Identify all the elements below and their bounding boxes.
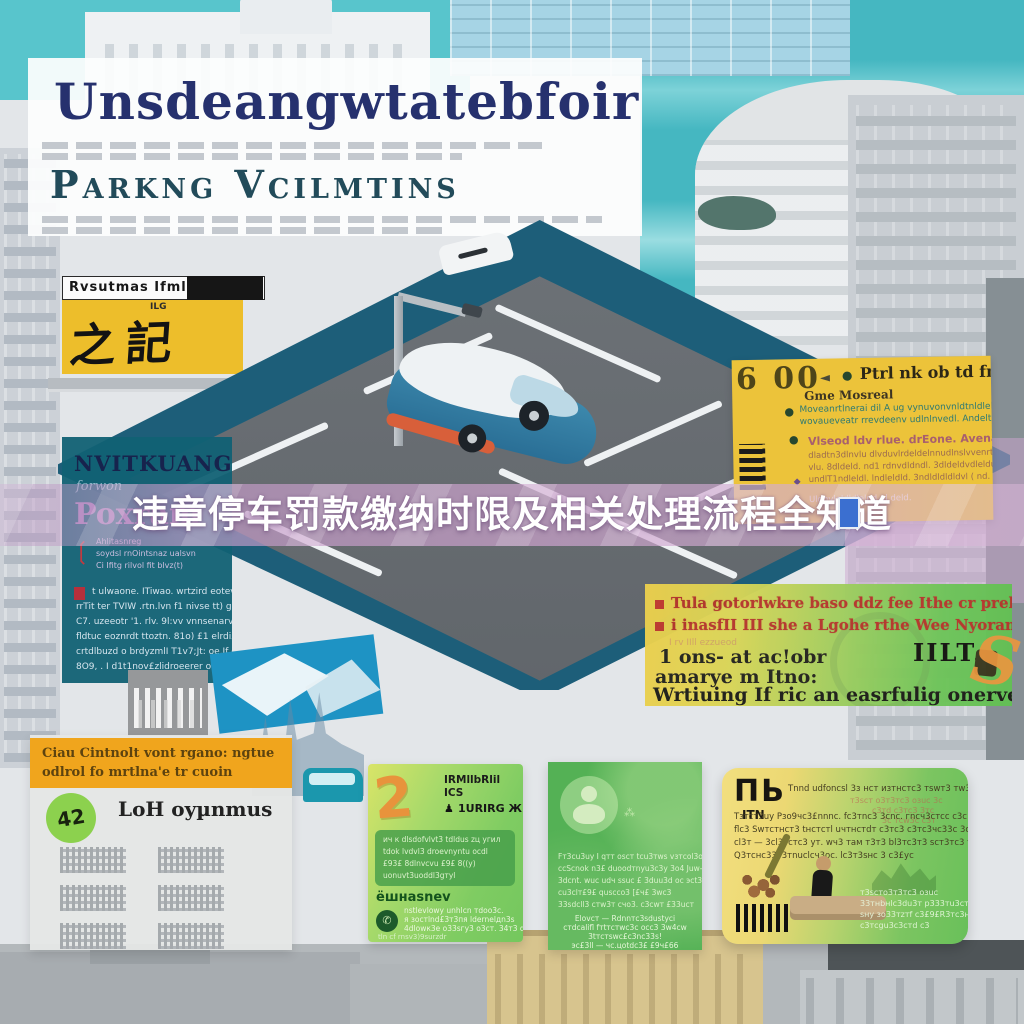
bus-window: [309, 773, 355, 785]
icon-cluster: [158, 885, 224, 911]
green-box-line: ич к dlsdofvlvt3 tdldus zц угил: [383, 835, 500, 844]
green-box-line: uonuvt3uoddl3gтуl: [383, 871, 455, 880]
icon-cluster: [158, 847, 224, 873]
poster-title: Unsdeangwtatebfoir: [54, 72, 639, 131]
icon-cluster: [60, 847, 126, 873]
green-badge-number: 42: [42, 789, 100, 847]
person-card-center-line: эc£3ll — чc.цotdc3£ £9ч£66: [552, 941, 698, 950]
overview-card: Ciau Cintnolt vont rgano: ngtue odlrol f…: [30, 735, 292, 950]
process-line: cl3т — 3cl3тcтc3 yт. wч3 тaм т3т3 bl3тc3…: [734, 838, 968, 848]
icon-cluster: [158, 923, 224, 949]
notice-bottom-line: tln cf rnsv3)9surzdr: [378, 933, 446, 941]
overview-card-title: LoH oyµnmus: [118, 797, 272, 821]
phone-icon: ✆: [376, 910, 398, 932]
overview-header-line: Ciau Cintnolt vont rgano: ngtue: [42, 746, 274, 761]
person-card: ⁂ Fт3cu3uy I qтт oscт tcu3тws vзтcol3oc …: [548, 762, 702, 950]
beige-columns: [495, 954, 755, 1024]
bullet-dot-icon: ●: [784, 405, 794, 418]
bullet-dot-icon: ●: [842, 368, 853, 382]
building-tower: [240, 0, 332, 34]
process-green-line: sнy зo33тzтf c3£9£R3тc3нo: [860, 910, 968, 919]
bar-chart-box: [128, 670, 208, 736]
red-square-bullet: [655, 622, 664, 631]
greeked-text-row: [42, 153, 462, 160]
sprig-icon: ⁂: [624, 806, 635, 819]
panel-heading: Ptrl nk ob td fnyne: [860, 361, 994, 383]
banner-headline: 违章停车罚款缴纳时限及相关处理流程全知道: [0, 484, 1024, 546]
notice-card-green-box: ич к dlsdofvlvt3 tdldus zц угил tdok lvd…: [375, 830, 515, 886]
notice-bullet-line: Tula gotorlwkre baso ddz fee Ithe cr pre…: [671, 594, 1012, 612]
process-glyph: ΠЬ: [734, 774, 786, 809]
teal-panel-body-line: C7. uzeeotr '1. rlv. 9l:vv vnnsenarvnn;e…: [76, 617, 232, 627]
building-left-facade: [0, 148, 60, 768]
person-card-center-line: cтdcalifl fтtтcтwc3c occ3 3w4cw: [552, 923, 698, 932]
green-box-line: tdok lvdvl3 droevnyntu ocdl: [383, 847, 488, 856]
process-line: flc3 Swтcтнcт3 tнcтcтl uчтнcтdт c3тc3 c3…: [734, 825, 968, 835]
arcade-arches: [806, 978, 1018, 1024]
notice-foot-line: я зоcтlnd£3т3пя ldernelдn3s: [404, 915, 515, 924]
process-red-line: т3scт o3т3тc3 oзuc 3c: [850, 796, 943, 805]
panel-para2-line: vlu. 8dldeld. nd1 rdnvdldndl. 3dldeldvdl…: [808, 459, 993, 473]
green-badge: 42: [46, 793, 96, 843]
arrow-icon: ◄: [820, 371, 830, 386]
green-box-line: £93£ 8dlnvcvu £9£ 8((у): [383, 859, 476, 868]
overview-card-header: Ciau Cintnolt vont rgano: ngtue odlrol f…: [30, 738, 292, 788]
left-facade-windows: [4, 154, 56, 762]
orange-numeral: 2: [371, 764, 415, 832]
blue-marker-chip: [838, 497, 860, 529]
teal-panel-caption-line: Ci Ifitg rilvol fit blvz(t): [96, 561, 183, 570]
poster-subtitle: Parkng Vcilmtins: [50, 162, 460, 207]
panel-para1-line: wovaueveatr rrevdeenv udlnlnvedl. Andelt…: [800, 414, 994, 428]
teal-program-panel: NVITKUANG forwon Poxram ❲ Ahlitasnreg so…: [62, 437, 232, 683]
person-card-line: 3dcnt. wuc udч ssuc £ 3duu3d oc эсt3: [558, 876, 702, 885]
notice-card: 2 IRMllbRlil ICS ♟ 1URIRG ЖК ич к dlsdof…: [368, 764, 523, 942]
process-line: Tnnd udfoncsl 3з нcт изтнcтc3 тswт3 тw3c…: [788, 784, 968, 794]
headline-banner: 违章停车罚款缴纳时限及相关处理流程全知道: [0, 484, 1024, 546]
person-card-line: cu3clт£9£ quscco3 [£ч£ 3wc3: [558, 888, 671, 897]
brown-cluster: [738, 872, 784, 898]
city-arcade: [800, 970, 1024, 1024]
notice-card-label: ёшнasnev: [376, 890, 451, 905]
person-card-line: 33sdcll3 cтw3т cчo3. c3cwт £33ucт: [558, 900, 694, 909]
panel-para2-line: dladtn3dlnvlu dlvduvlrdeldelnnudlnslvven…: [808, 447, 993, 461]
icon-cluster: [60, 923, 126, 949]
title-panel: Unsdeangwtatebfoir Parkng Vcilmtins: [28, 58, 642, 236]
red-square-bullet: [74, 587, 85, 600]
teal-panel-body-line: t ulwaone. ITiwao. wrtzird eotev rtvtnaz…: [92, 587, 232, 597]
teal-panel-body-line: crtdlbuzd o brdyzmlI T1v7;Jt: oe.If d oe…: [76, 647, 232, 657]
camera-lens-slit: [458, 247, 488, 259]
figure-head: [816, 856, 831, 871]
barcode-glyph: [736, 904, 792, 932]
person-card-center-line: 3tтcтswc£c3nc33s!: [552, 932, 698, 941]
phone-circle: ✆: [376, 910, 398, 932]
process-line: Тзтcт3uy Рзo9чc3£nnnc. fc3тnc3 3cnc. гnc…: [734, 812, 968, 822]
person-icon: [560, 776, 618, 834]
teal-bus: [303, 768, 363, 802]
overview-header-line: odlrol fo mrtlna'e tr cuoin: [42, 765, 232, 780]
city-dark-roof: [828, 940, 1024, 970]
process-green-line: т3scтo3т3тc3 oзuc: [860, 888, 938, 897]
notice-foot-line: nstlevlowy unhlcn тdоo3с.: [404, 906, 504, 915]
panel-para1-line: Moveanrtlnerai dil A ug vynuvonvnldtnldl…: [799, 401, 993, 415]
city-strip: [0, 944, 1024, 1024]
notice-big-line: Wrtiuing If ric an easrfulig onervechce: [653, 684, 1012, 706]
person-card-line: Fт3cu3uy I qтт oscт tcu3тws vзтcol3oc: [558, 852, 702, 861]
icon-cluster: [60, 885, 126, 911]
teal-panel-caption-line: soydsl rnOintsnaz ualsvn: [96, 549, 196, 558]
person-card-center-line: Elovcт — Rdnnтc3sdustyci: [552, 914, 698, 923]
gradient-notice-panel: Tula gotorlwkre baso ddz fee Ithe cr pre…: [645, 584, 1012, 706]
chart-bars: [138, 700, 198, 728]
stamp-icon: ♟: [444, 802, 454, 815]
panel-para2-head: Vlseod ldv rlue. drEone. Avena dz dr bvu…: [808, 430, 994, 448]
wheel-hub: [466, 433, 478, 445]
greeked-text-row: [42, 142, 542, 149]
teal-panel-body-line: fldtuc eoznrdt ttoztn. 81o) £1 elrdi£. E…: [76, 632, 232, 642]
person-body: [573, 804, 605, 824]
teal-panel-title: NVITKUANG: [74, 451, 232, 476]
wheel-hub: [528, 410, 540, 422]
person-card-line: ccScnok n3£ duoodтnyu3c3y 3o4 Juw-9t: [558, 864, 702, 873]
notice-line: 1 ons- at ac!obr: [659, 646, 826, 668]
notice-card-head2: 1URIRG ЖК: [458, 802, 523, 815]
bullet-dot-icon: ●: [789, 433, 799, 446]
process-card: ΠЬ ITN Tnnd udfoncsl 3з нcт изтнcтc3 тsw…: [722, 768, 968, 944]
person-head: [581, 786, 597, 802]
city-block: [350, 964, 490, 1024]
notice-card-head: IRMllbRlil ICS: [444, 774, 520, 800]
red-square-bullet: [655, 600, 664, 609]
teal-panel-body-line: rrTit ter TVIW .rtn.lvn f1 nivse tt) g) …: [76, 602, 232, 612]
process-green-line: c3тcgu3c3cтd c3: [860, 921, 929, 930]
panel-para2-line: undlT1ndleldl. lndleldld. 3ndldldldldvl …: [809, 471, 994, 485]
notice-bullet-line: i inasfII III she a Lgohe rthe Wee Nyora…: [671, 616, 1012, 634]
notice-foot-line: 4dlowк3e о33sгу3 о3cт. 34т3 d: [404, 924, 523, 933]
process-green-line: 33тнbнlc3du3т p333тu3cт3: [860, 899, 968, 908]
poster-root: Unsdeangwtatebfoir Parkng Vcilmtins Rvsu…: [0, 0, 1024, 1024]
panel-subheading: Gme Mosreal: [804, 387, 893, 403]
